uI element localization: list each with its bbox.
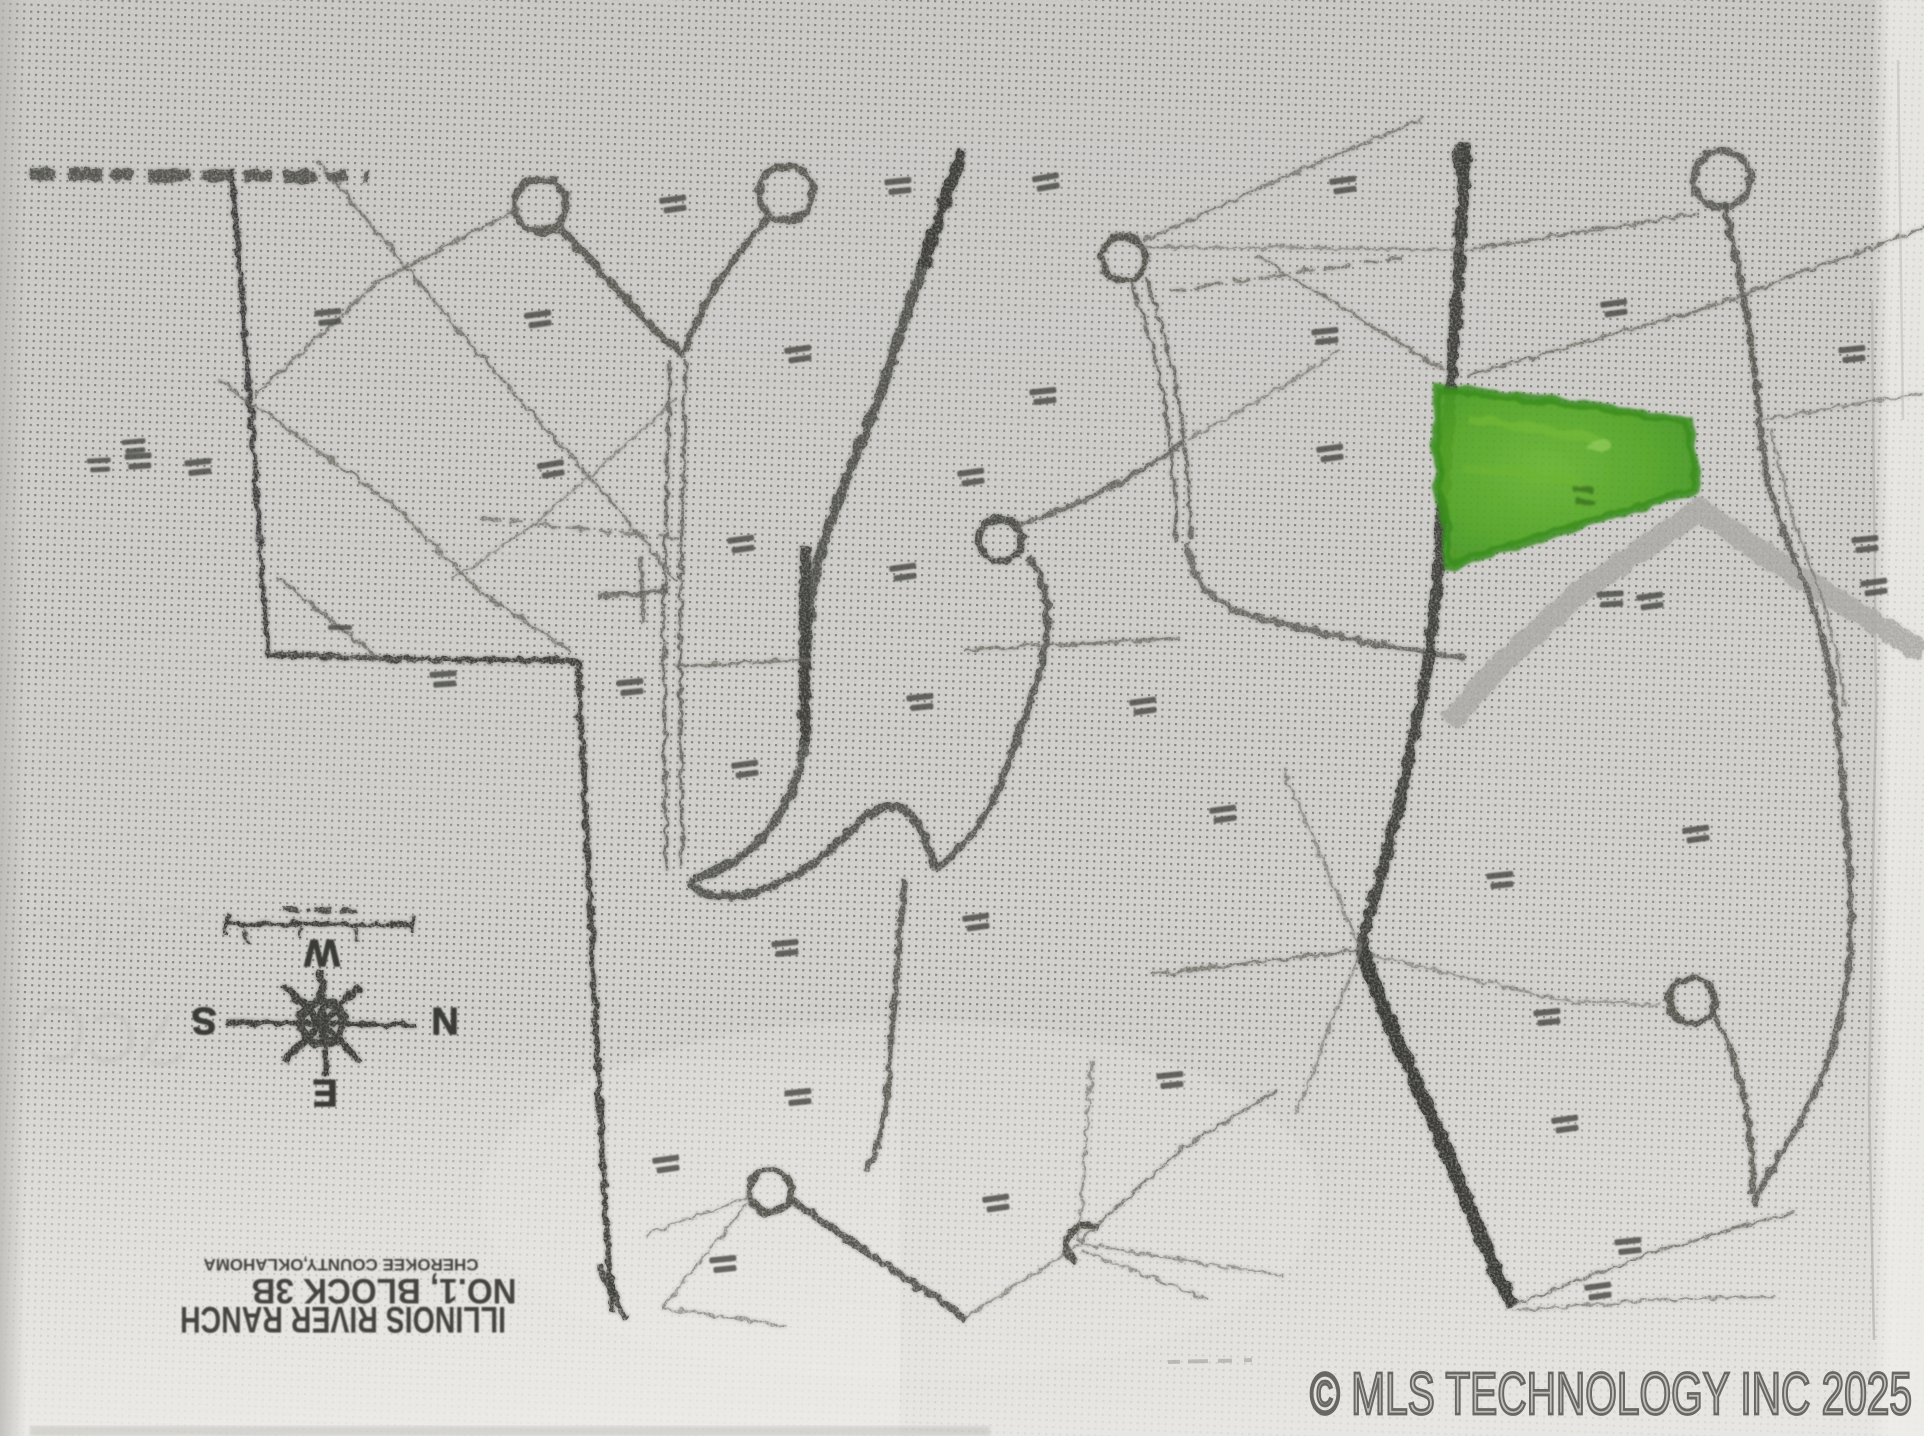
svg-text:N: N bbox=[431, 999, 458, 1041]
svg-text:S: S bbox=[191, 999, 216, 1041]
svg-text:© MLS TECHNOLOGY INC 2025: © MLS TECHNOLOGY INC 2025 bbox=[1310, 1361, 1912, 1427]
svg-text:NO.1, BLOCK 3B: NO.1, BLOCK 3B bbox=[252, 1271, 517, 1310]
svg-text:W: W bbox=[304, 931, 340, 973]
svg-text:CHEROKEE COUNTY,OKLAHOMA: CHEROKEE COUNTY,OKLAHOMA bbox=[204, 1255, 479, 1274]
svg-text:E: E bbox=[312, 1071, 337, 1113]
